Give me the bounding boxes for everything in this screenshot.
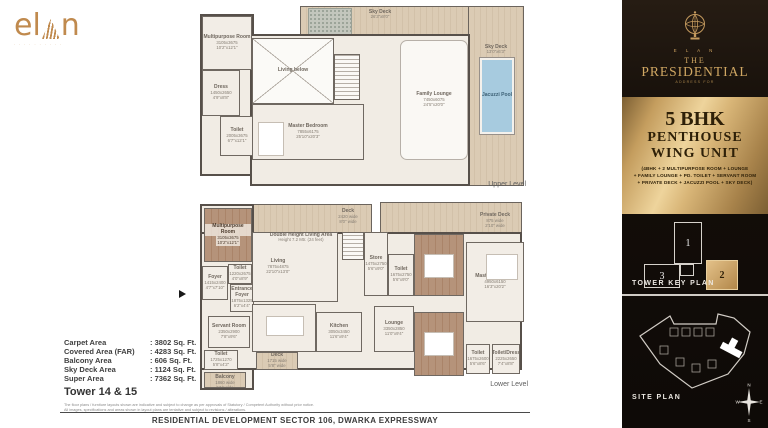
room-living-below: Living below [252,38,334,104]
room-sky-deck: Sky Deck26'3"x8'0" [358,8,402,22]
logo-text-left: el [14,12,41,39]
plan-area [258,122,284,156]
plan-area [486,254,518,280]
area-row: Covered Area (FAR): 4283 Sq. Ft. [64,347,214,356]
entrance-arrow-icon [179,290,186,298]
room-toilet-dress: Toilet/Dress2225x26507'4"x8'8" [492,344,520,374]
unit-type-card: 5 BHK PENTHOUSE WING UNIT (4BHK + 2 MULT… [622,97,768,214]
compass-icon: N S W E [734,382,764,424]
unit-penthouse-text: PENTHOUSE [622,130,768,146]
sidebar-panel: E L A N THE PRESIDENTIAL ADDRESS FOR 5 B… [622,0,768,428]
room-sky-deck: Sky Deck13'0"x6'3" [474,44,518,56]
unit-details-text: (4BHK + 2 MULTIPURPOSE ROOM + LOUNGE + F… [622,166,768,187]
room-dress: Dress1450x26504'9"x8'8" [202,70,240,116]
brand-elan-text: E L A N [622,48,768,53]
logo-text-right: n [61,12,80,39]
plan-area [342,232,364,260]
lower-level-plan: Multipurpose Room3105x367510'2"x12'1"Foy… [186,196,530,390]
tower-1-shape: 1 [674,222,702,264]
room-multipurpose-room: Multipurpose Room3105x367510'2"x12'1" [204,208,252,262]
room-servant-room: Servant Room2350x29007'8"x9'6" [208,316,250,348]
area-row: Sky Deck Area: 1124 Sq. Ft. [64,365,214,374]
unit-bhk-text: 5 BHK [622,109,768,130]
tower-key-plan-label: TOWER KEY PLAN [632,280,715,287]
tower-label: Tower 14 & 15 [64,386,137,398]
unit-wing-text: WING UNIT [622,146,768,162]
room-toilet: Toilet1675x26005'6"x8'6" [466,344,490,374]
room-lounge: Lounge3350x285011'0"x9'4" [374,306,414,352]
striped-a-icon [42,19,60,39]
upper-level-caption: Upper Level [488,181,526,188]
site-plan-graphic [630,302,760,392]
logo-tagline: ∙ ∙ ∙ ∙ ∙ ∙ ∙ ∙ ∙ ∙ [14,42,94,46]
area-statement-table: Carpet Area: 3802 Sq. Ft.Covered Area (F… [64,338,214,383]
brochure-page: el n ∙ ∙ ∙ ∙ ∙ ∙ ∙ ∙ ∙ ∙ Multipurpose Ro… [0,0,768,428]
footer-divider [60,412,530,413]
site-plan-label: SITE PLAN [632,394,681,401]
plan-area [424,254,454,278]
svg-text:S: S [747,418,750,423]
area-row: Super Area: 7362 Sq. Ft. [64,374,214,383]
brand-tagline: ADDRESS FOR [622,80,768,84]
room-family-lounge: Family Lounge7450x607524'5"x20'0" [400,40,468,160]
room-living: Living7875x487522'10"x13'0" [256,254,300,280]
crest-icon [678,10,712,46]
room-double-height-living-area: Double Height Living AreaHeight 7.2 Mtr.… [264,228,338,248]
room-jacuzzi-pool: Jacuzzi Pool [480,58,514,134]
area-row: Balcony Area: 606 Sq. Ft. [64,356,214,365]
svg-text:E: E [759,400,762,405]
plan-area [424,332,454,356]
room-store: Store1475x27505'6"x9'0" [364,232,388,296]
svg-text:N: N [747,383,750,388]
room-toilet: Toilet1675x27505'6"x9'0" [388,254,414,296]
room-toilet: Toilet1220x26754'0"x8'9" [228,264,252,284]
room-deck: Deck1715 wide5'8" wide [256,352,298,370]
brand-presidential-text: PRESIDENTIAL [622,64,768,80]
plan-area [334,54,360,100]
tower-core-shape [680,264,694,276]
room-entrance-foyer: Entrance Foyer1875x13256'2"x4'4" [230,284,254,312]
lower-level-caption: Lower Level [490,381,528,388]
sidebar-divider [622,294,768,296]
plan-area [266,316,304,336]
room-multipurpose-room: Multipurpose Room3105x367510'2"x12'1" [202,16,252,70]
elan-logo-wordmark: el n [14,12,94,39]
room-foyer: Foyer1415x24004'7"x7'10" [202,266,228,300]
room-private-deck: Private Deck875 wide2'10" wide [468,208,522,234]
room-deck: Deck2420 wide8'0" wide [326,206,370,228]
area-row: Carpet Area: 3802 Sq. Ft. [64,338,214,347]
room-kitchen: Kitchen3050x345011'6"x9'4" [316,312,362,352]
room-toilet: Toilet2005x36756'7"x12'1" [220,116,254,156]
project-location-text: RESIDENTIAL DEVELOPMENT SECTOR 106, DWAR… [60,416,530,425]
elan-logo: el n ∙ ∙ ∙ ∙ ∙ ∙ ∙ ∙ ∙ ∙ [14,12,94,46]
upper-level-plan: Multipurpose Room3105x367510'2"x12'1"Dre… [192,4,528,188]
